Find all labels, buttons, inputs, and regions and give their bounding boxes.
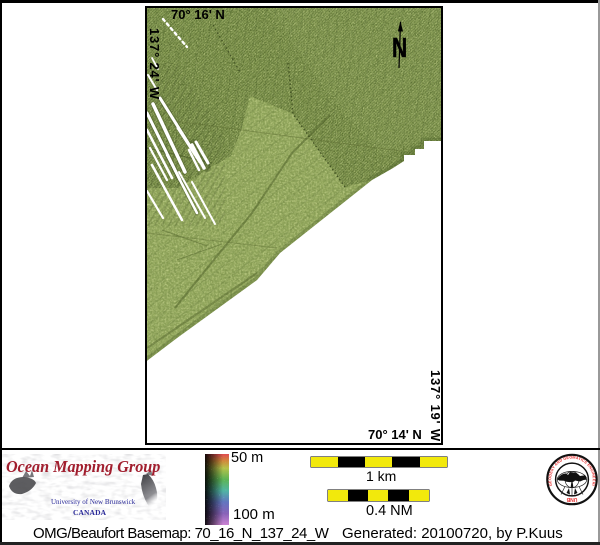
svg-text:UNB: UNB <box>566 496 577 502</box>
